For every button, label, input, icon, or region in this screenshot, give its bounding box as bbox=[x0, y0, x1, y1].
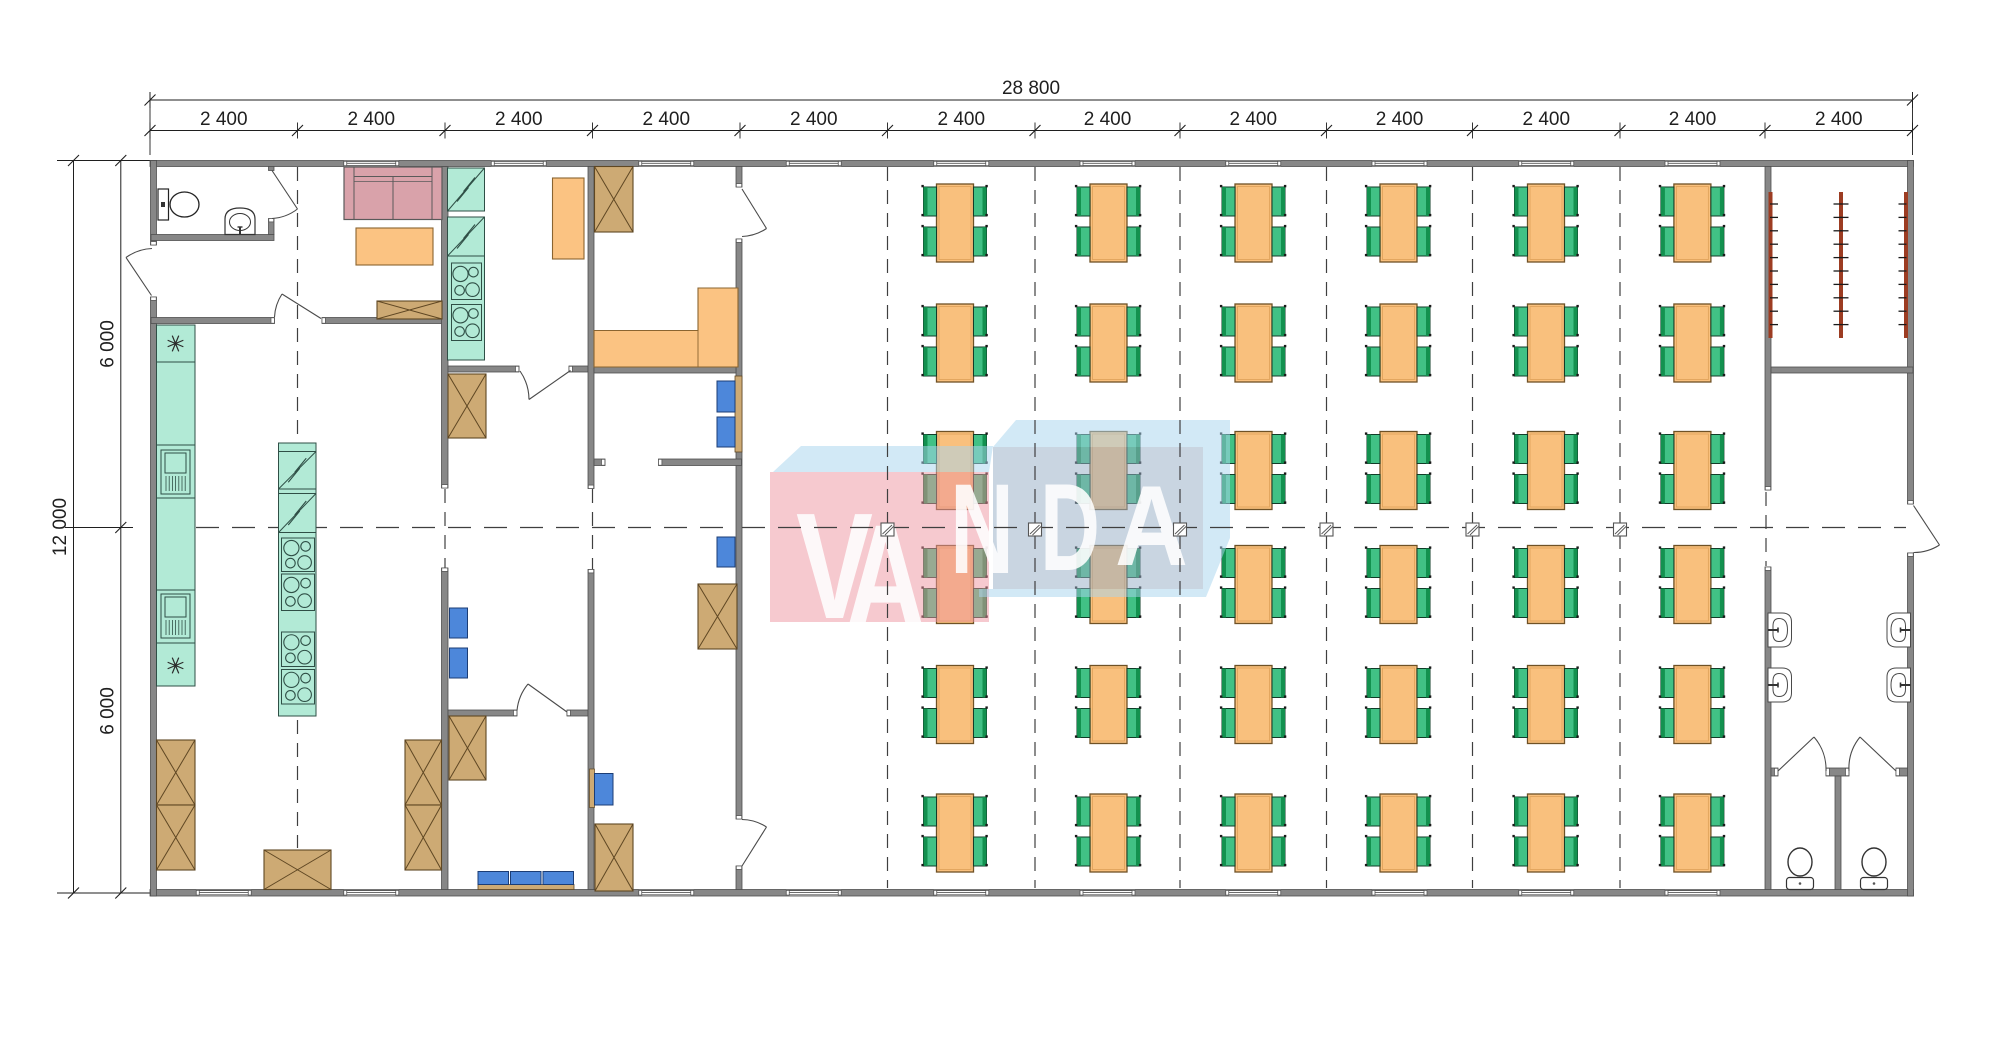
svg-text:2 400: 2 400 bbox=[1522, 109, 1570, 130]
svg-text:2 400: 2 400 bbox=[790, 109, 838, 130]
svg-text:N: N bbox=[950, 458, 1014, 601]
svg-text:2 400: 2 400 bbox=[347, 109, 395, 130]
svg-text:A: A bbox=[845, 493, 926, 661]
svg-text:2 400: 2 400 bbox=[200, 109, 248, 130]
svg-text:2 400: 2 400 bbox=[642, 109, 690, 130]
svg-text:6 000: 6 000 bbox=[98, 687, 119, 735]
svg-text:2 400: 2 400 bbox=[1669, 109, 1717, 130]
svg-text:12 000: 12 000 bbox=[50, 498, 71, 556]
svg-text:6 000: 6 000 bbox=[98, 320, 119, 368]
svg-text:2 400: 2 400 bbox=[495, 109, 543, 130]
svg-text:2 400: 2 400 bbox=[1084, 109, 1132, 130]
svg-text:2 400: 2 400 bbox=[1376, 109, 1424, 130]
svg-text:2 400: 2 400 bbox=[1815, 109, 1863, 130]
svg-text:2 400: 2 400 bbox=[937, 109, 985, 130]
svg-text:2 400: 2 400 bbox=[1229, 109, 1277, 130]
svg-text:28 800: 28 800 bbox=[1002, 78, 1060, 99]
